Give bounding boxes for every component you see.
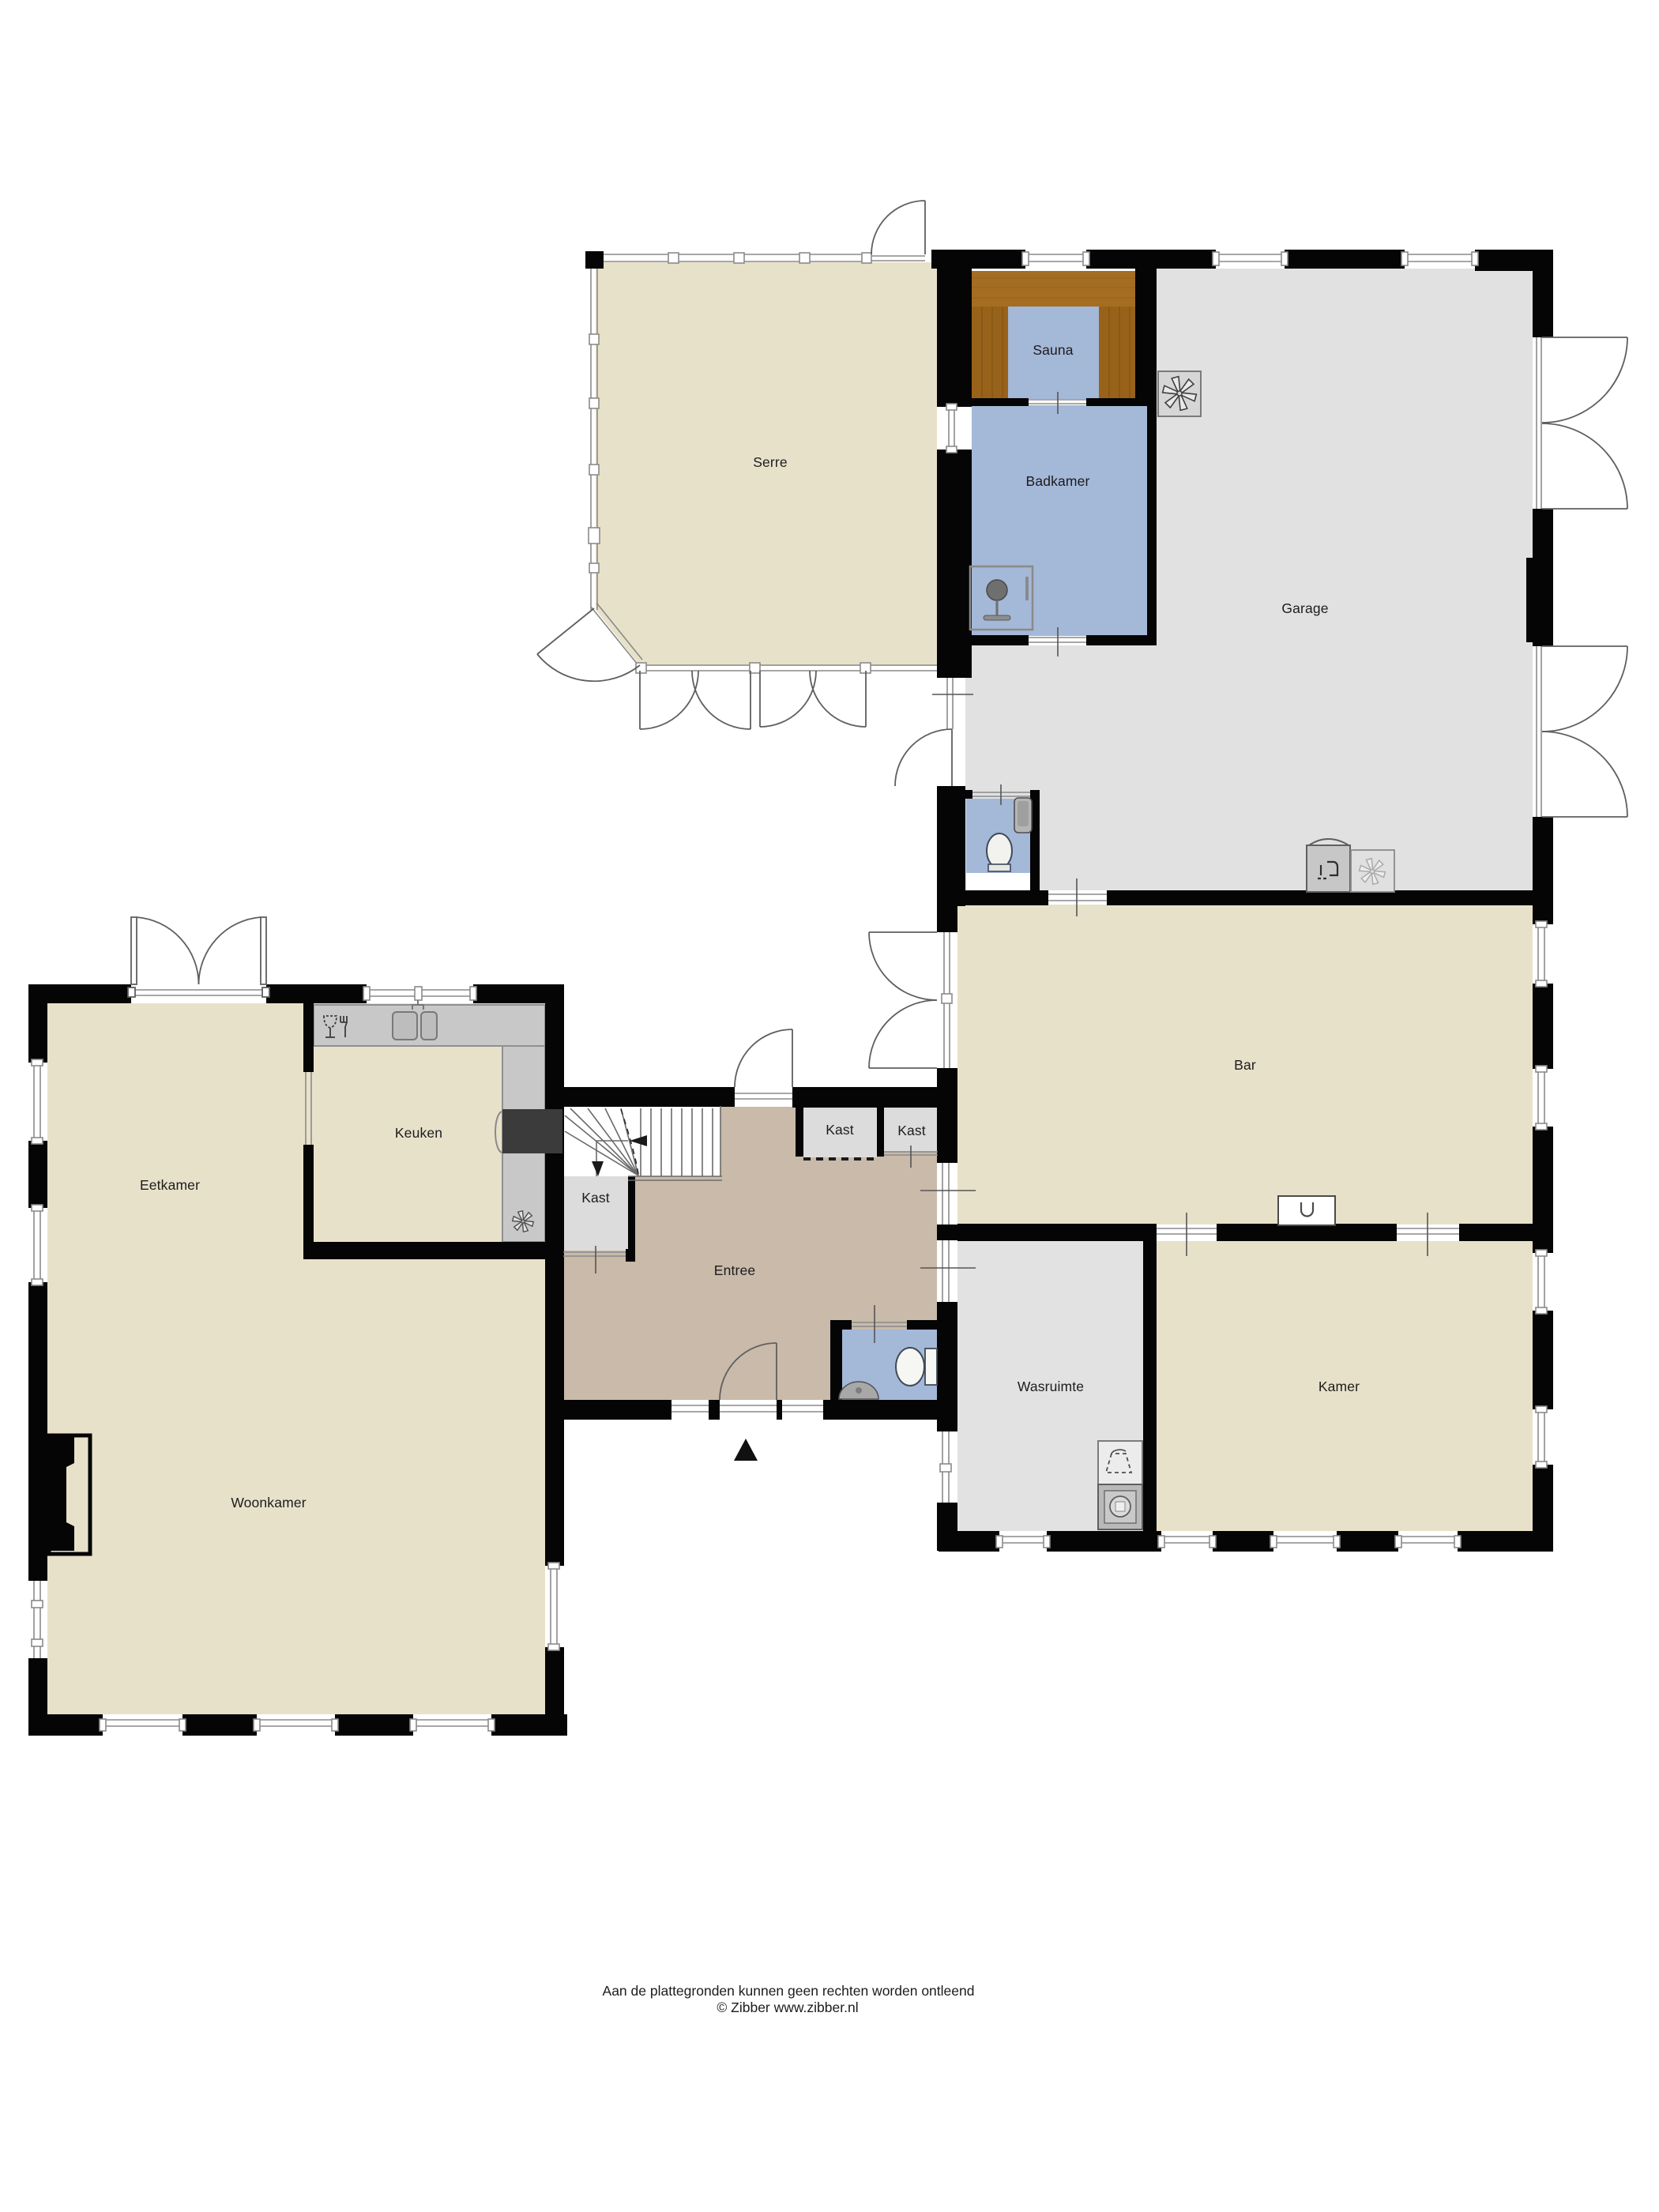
svg-text:Kast: Kast [826,1122,854,1138]
svg-text:Sauna: Sauna [1033,342,1073,358]
svg-text:Kast: Kast [581,1190,610,1206]
svg-text:© Zibber www.zibber.nl: © Zibber www.zibber.nl [717,1999,858,2015]
svg-text:Wasruimte: Wasruimte [1018,1379,1084,1394]
svg-text:Bar: Bar [1234,1057,1256,1073]
svg-text:Kamer: Kamer [1319,1379,1360,1394]
svg-text:Woonkamer: Woonkamer [231,1495,306,1510]
svg-text:Aan de plattegronden kunnen ge: Aan de plattegronden kunnen geen rechten… [603,1983,975,1999]
svg-text:Kast: Kast [897,1123,926,1138]
svg-text:Eetkamer: Eetkamer [140,1177,200,1193]
svg-text:Keuken: Keuken [395,1125,442,1141]
svg-text:Badkamer: Badkamer [1026,473,1090,489]
svg-text:Garage: Garage [1281,600,1328,616]
svg-text:Serre: Serre [753,454,788,470]
svg-text:Entree: Entree [714,1262,755,1278]
